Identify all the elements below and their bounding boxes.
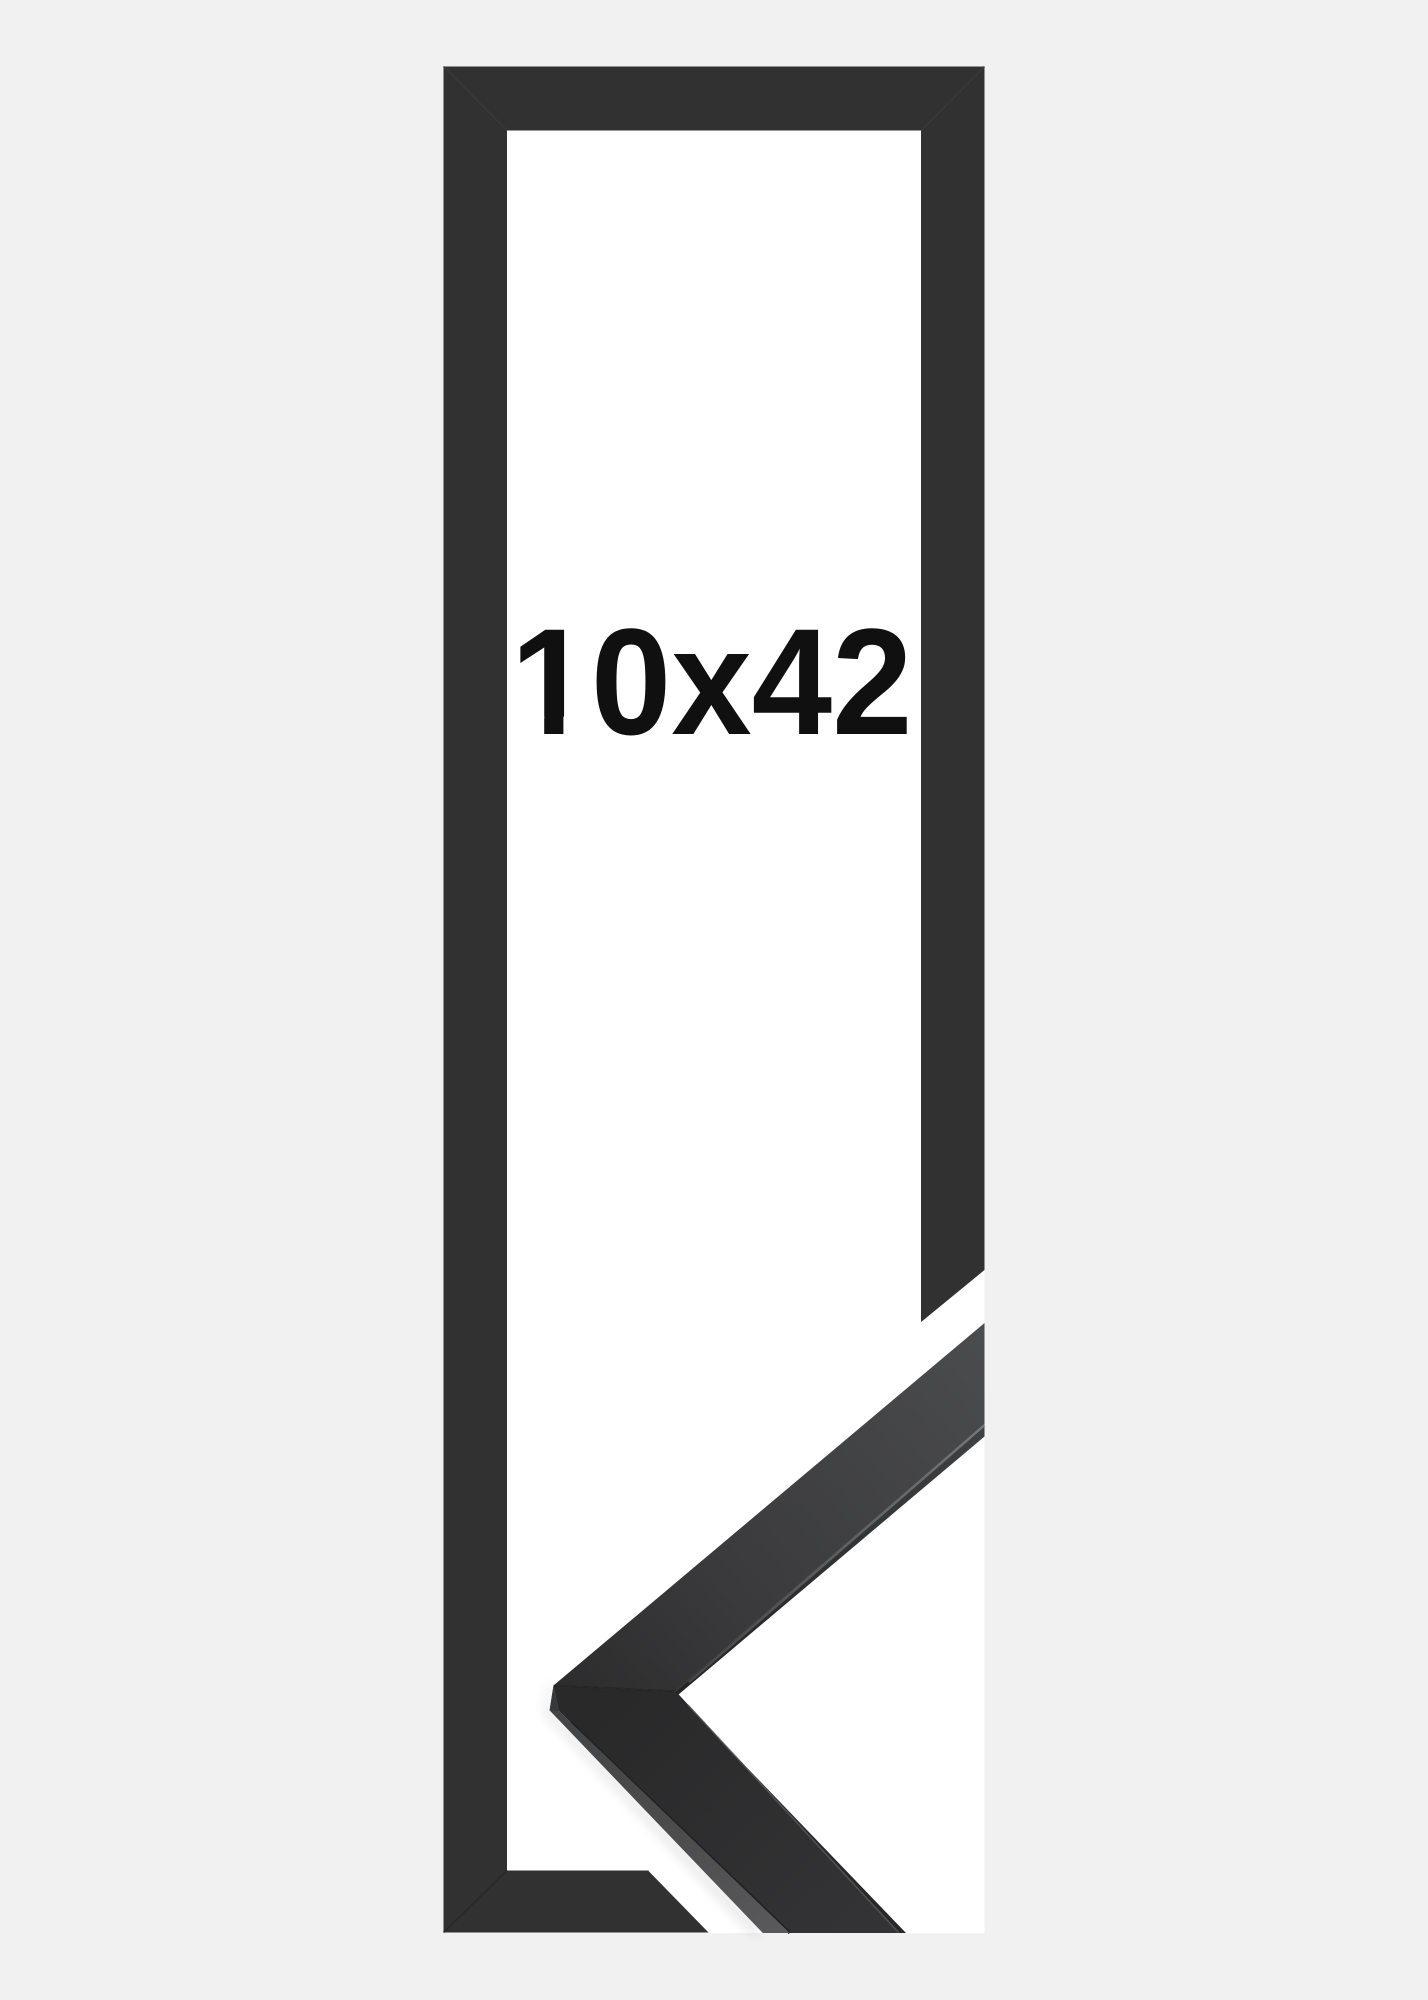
svg-text:10x42: 10x42	[511, 598, 913, 767]
